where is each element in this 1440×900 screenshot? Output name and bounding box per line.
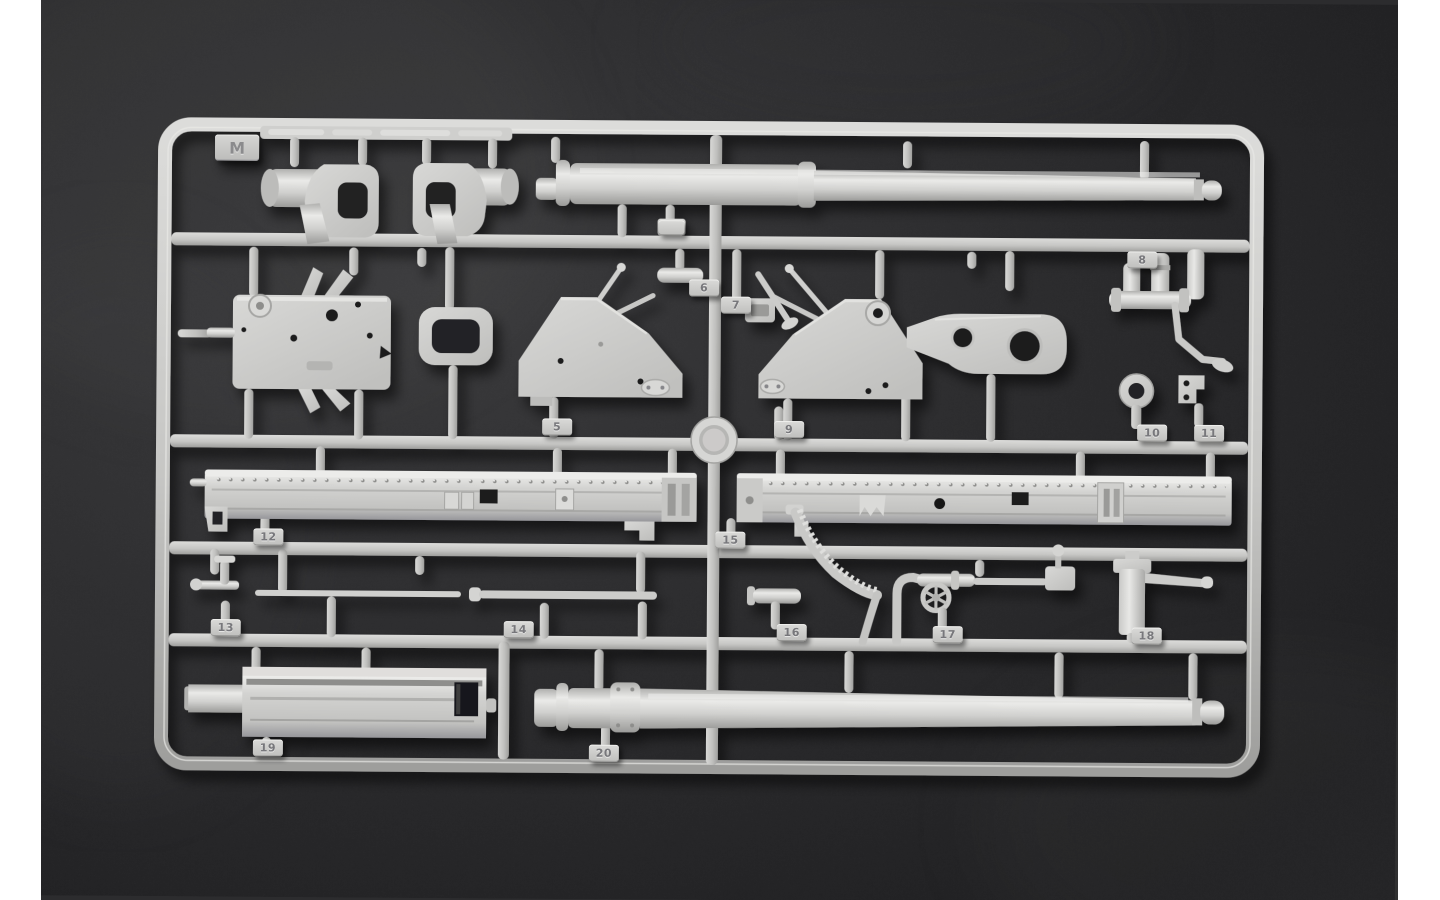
part-center-hub [691, 417, 737, 463]
photo-area: M 567891011121314151617181920 [41, 0, 1398, 900]
blank-tab-shape [657, 219, 685, 236]
sprue-letter-tab-base [215, 135, 259, 161]
photo-of-model-kit-sprue: M 567891011121314151617181920 [0, 0, 1440, 900]
part-rounded-frame-ring [419, 307, 493, 366]
sprue-drawing [41, 0, 1398, 900]
sprue-rotation-wrapper: M 567891011121314151617181920 [41, 0, 1398, 900]
embossed-text-strip [260, 126, 512, 141]
